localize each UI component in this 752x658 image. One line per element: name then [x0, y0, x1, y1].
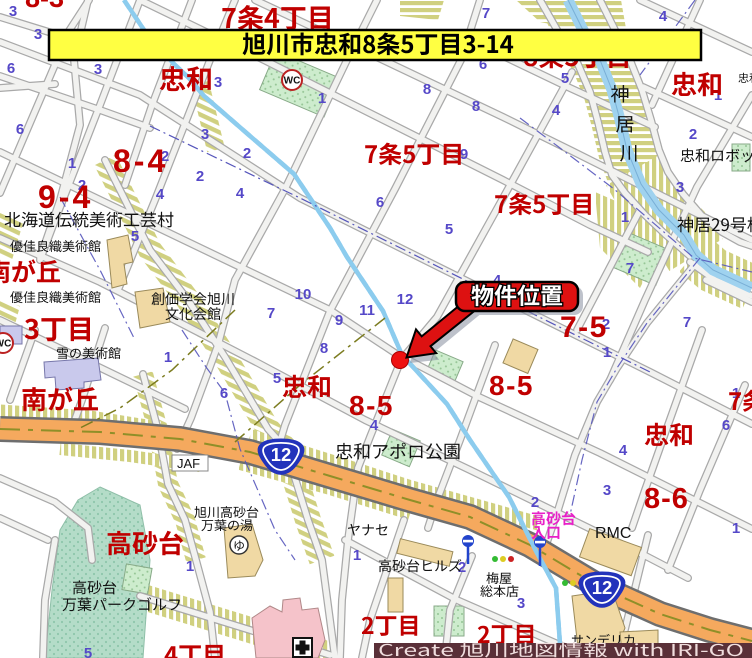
svg-text:WC: WC	[284, 76, 301, 87]
svg-text:12: 12	[592, 577, 613, 598]
svg-text:1: 1	[621, 209, 629, 226]
svg-text:5: 5	[561, 70, 569, 87]
svg-text:3: 3	[517, 595, 525, 612]
svg-text:4: 4	[236, 185, 245, 202]
svg-text:5: 5	[84, 645, 92, 658]
svg-text:6: 6	[220, 385, 228, 402]
svg-text:WC: WC	[0, 339, 11, 350]
svg-text:8-4: 8-4	[113, 143, 168, 179]
svg-text:3: 3	[603, 482, 611, 499]
svg-text:8: 8	[320, 340, 328, 357]
svg-text:12: 12	[271, 444, 292, 465]
svg-text:11: 11	[359, 302, 375, 319]
svg-text:3: 3	[94, 61, 102, 78]
svg-text:3: 3	[201, 126, 209, 143]
svg-text:5: 5	[131, 228, 139, 245]
svg-text:1: 1	[186, 558, 194, 575]
svg-text:6: 6	[376, 194, 384, 211]
svg-text:4: 4	[619, 442, 628, 459]
svg-text:12: 12	[397, 291, 414, 308]
svg-text:9: 9	[335, 312, 343, 329]
svg-text:7: 7	[626, 260, 634, 277]
svg-text:9: 9	[460, 146, 468, 163]
svg-text:6: 6	[16, 121, 24, 138]
svg-text:4: 4	[659, 8, 668, 25]
svg-text:6: 6	[722, 417, 730, 434]
svg-text:1: 1	[353, 547, 361, 564]
svg-text:2: 2	[531, 494, 539, 511]
svg-text:JAF: JAF	[177, 456, 200, 471]
svg-text:7: 7	[267, 305, 275, 322]
svg-text:4: 4	[552, 102, 561, 119]
svg-text:8-3: 8-3	[25, 0, 64, 13]
svg-text:3: 3	[9, 3, 17, 20]
svg-text:3: 3	[34, 26, 42, 43]
svg-text:9-4: 9-4	[38, 179, 93, 215]
svg-text:8-5: 8-5	[489, 370, 534, 401]
svg-text:8: 8	[472, 98, 480, 115]
svg-text:2: 2	[196, 168, 204, 185]
svg-text:2: 2	[243, 145, 251, 162]
svg-text:3: 3	[214, 74, 222, 91]
svg-text:7: 7	[482, 5, 490, 22]
svg-text:1: 1	[732, 520, 740, 537]
svg-text:8: 8	[423, 81, 431, 98]
svg-text:4: 4	[156, 186, 165, 203]
svg-text:7-5: 7-5	[560, 311, 608, 344]
svg-text:6: 6	[7, 60, 15, 77]
svg-text:3: 3	[676, 179, 684, 196]
svg-text:8-5: 8-5	[349, 390, 394, 421]
svg-text:8-6: 8-6	[644, 483, 689, 515]
svg-text:5: 5	[445, 221, 453, 238]
svg-text:10: 10	[295, 286, 312, 303]
svg-text:1: 1	[68, 155, 76, 172]
svg-text:5: 5	[273, 370, 281, 387]
svg-text:1: 1	[318, 90, 326, 107]
svg-text:7: 7	[683, 314, 691, 331]
svg-text:RMC: RMC	[595, 525, 631, 542]
svg-text:1: 1	[164, 349, 172, 366]
svg-text:2: 2	[689, 126, 697, 143]
svg-text:1: 1	[603, 344, 611, 361]
